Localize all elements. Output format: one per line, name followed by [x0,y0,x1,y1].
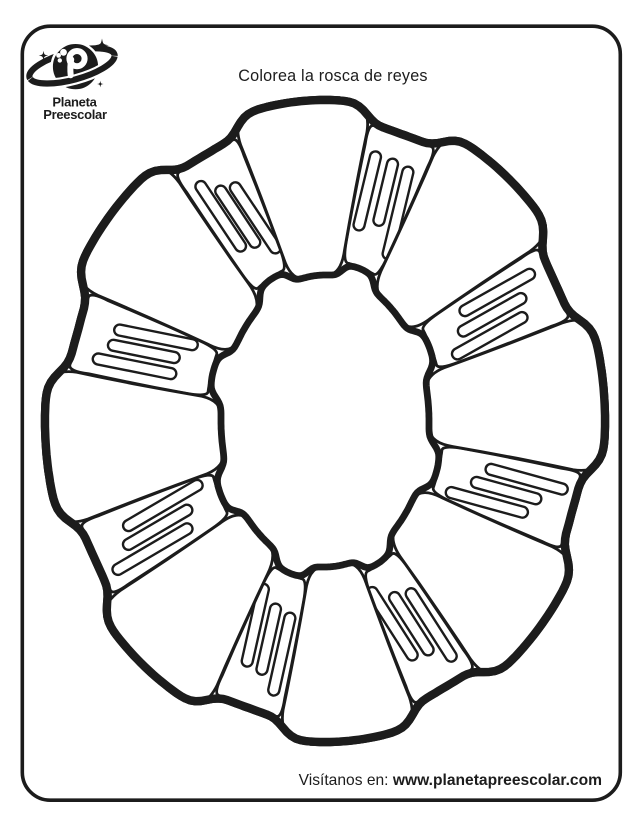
svg-text:Colorea la rosca de reyes: Colorea la rosca de reyes [238,67,427,85]
svg-text:Visítanos en: www.planetaprees: Visítanos en: www.planetapreescolar.com [299,772,602,789]
svg-text:Preescolar: Preescolar [43,107,107,122]
